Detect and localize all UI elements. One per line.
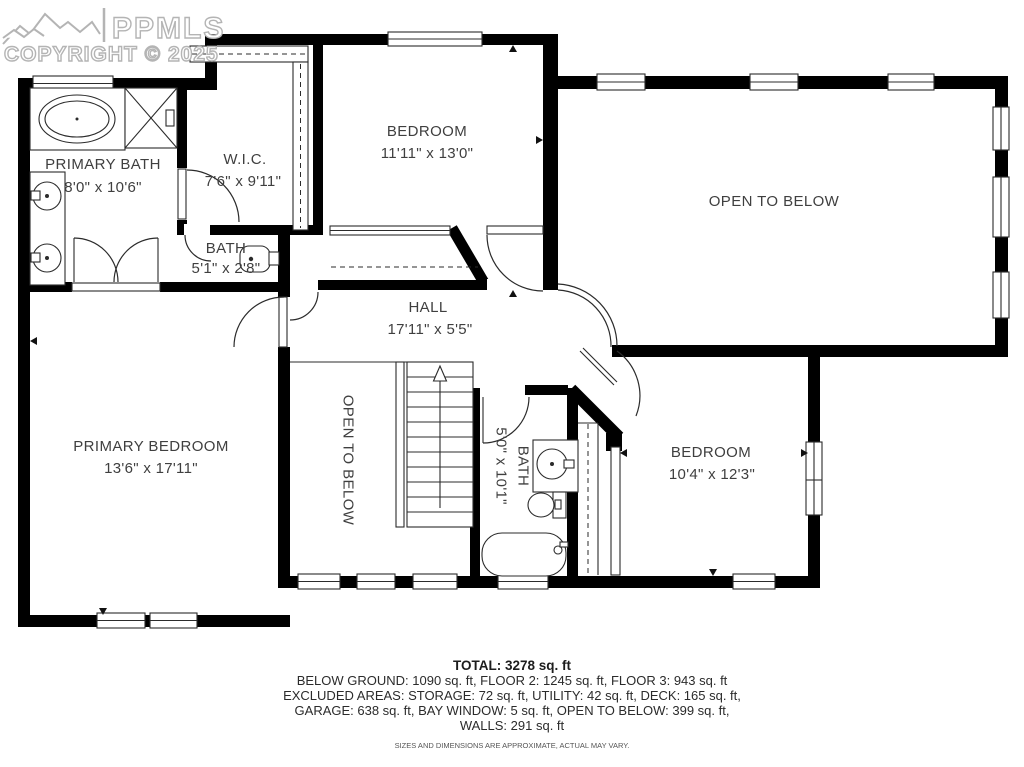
- summary-line2: EXCLUDED AREAS: STORAGE: 72 sq. ft, UTIL…: [283, 688, 741, 703]
- curved-railing: [558, 284, 617, 347]
- window: [150, 613, 197, 628]
- room-dims-bedroom-right: 10'4" x 12'3": [669, 466, 755, 483]
- vanity-sinks: [30, 172, 65, 285]
- staircase: [290, 362, 473, 527]
- toilet: [528, 492, 566, 518]
- room-dims-bath-small: 5'1" x 2'8": [192, 260, 261, 277]
- summary-line4: WALLS: 291 sq. ft: [460, 718, 565, 733]
- watermark-copyright: COPYRIGHT © 2025: [4, 43, 219, 66]
- summary-line3: GARAGE: 638 sq. ft, BAY WINDOW: 5 sq. ft…: [295, 703, 730, 718]
- vanity-sink-vertical-bath: [533, 440, 578, 492]
- room-label-bath-small: BATH: [206, 240, 247, 257]
- area-summary: TOTAL: 3278 sq. ft BELOW GROUND: 1090 sq…: [283, 658, 741, 750]
- room-label-bedroom-top: BEDROOM: [387, 123, 467, 140]
- room-dims-primary-bath: 8'0" x 10'6": [64, 179, 142, 196]
- window: [357, 574, 395, 589]
- door-primary-bedroom: [234, 297, 291, 347]
- window: [597, 74, 645, 90]
- window: [298, 574, 340, 589]
- window: [750, 74, 798, 90]
- room-dims-bedroom-top: 11'11" x 13'0": [381, 145, 474, 162]
- room-label-bedroom-right: BEDROOM: [671, 444, 751, 461]
- watermark-brand: PPMLS: [112, 12, 225, 45]
- door-bedroom-top: [487, 224, 543, 291]
- fixtures: [30, 46, 620, 576]
- room-label-hall: HALL: [408, 299, 447, 316]
- window: [413, 574, 457, 589]
- window: [97, 613, 145, 628]
- window: [388, 32, 482, 46]
- summary-total: TOTAL: 3278 sq. ft: [453, 658, 572, 673]
- double-door-primary-bath: [72, 238, 160, 293]
- window: [993, 272, 1009, 318]
- room-dims-primary-bedroom: 13'6" x 17'11": [104, 460, 198, 477]
- room-label-bath-vertical: BATH: [515, 446, 532, 487]
- shower: [125, 88, 177, 148]
- room-dims-bath-vertical: 5'0" x 10'1": [493, 427, 510, 505]
- floor-plan-page: PRIMARY BATH 8'0" x 10'6" W.I.C. 7'6" x …: [0, 0, 1024, 767]
- room-dims-hall: 17'11" x 5'5": [387, 321, 472, 338]
- summary-line1: BELOW GROUND: 1090 sq. ft, FLOOR 2: 1245…: [297, 673, 728, 688]
- room-dims-wic: 7'6" x 9'11": [205, 173, 281, 190]
- room-label-primary-bath: PRIMARY BATH: [45, 156, 161, 173]
- stair-railing: [396, 362, 404, 527]
- window: [733, 574, 775, 589]
- door-hall-corner: [290, 281, 318, 320]
- window: [993, 107, 1009, 150]
- summary-disclaimer: SIZES AND DIMENSIONS ARE APPROXIMATE, AC…: [395, 741, 630, 750]
- window: [993, 177, 1009, 237]
- watermark: PPMLS COPYRIGHT © 2025: [3, 8, 225, 66]
- room-label-wic: W.I.C.: [223, 151, 266, 168]
- mountains-logo: [3, 8, 104, 44]
- window: [806, 442, 822, 515]
- room-label-open-to-below: OPEN TO BELOW: [709, 193, 840, 210]
- window: [888, 74, 934, 90]
- floor-plan-drawing: PRIMARY BATH 8'0" x 10'6" W.I.C. 7'6" x …: [0, 0, 1024, 767]
- room-label-open-to-below-stairs: OPEN TO BELOW: [340, 395, 357, 526]
- room-label-primary-bedroom: PRIMARY BEDROOM: [73, 438, 228, 455]
- bathtub: [30, 88, 125, 150]
- bathtub-vertical-bath: [482, 533, 568, 576]
